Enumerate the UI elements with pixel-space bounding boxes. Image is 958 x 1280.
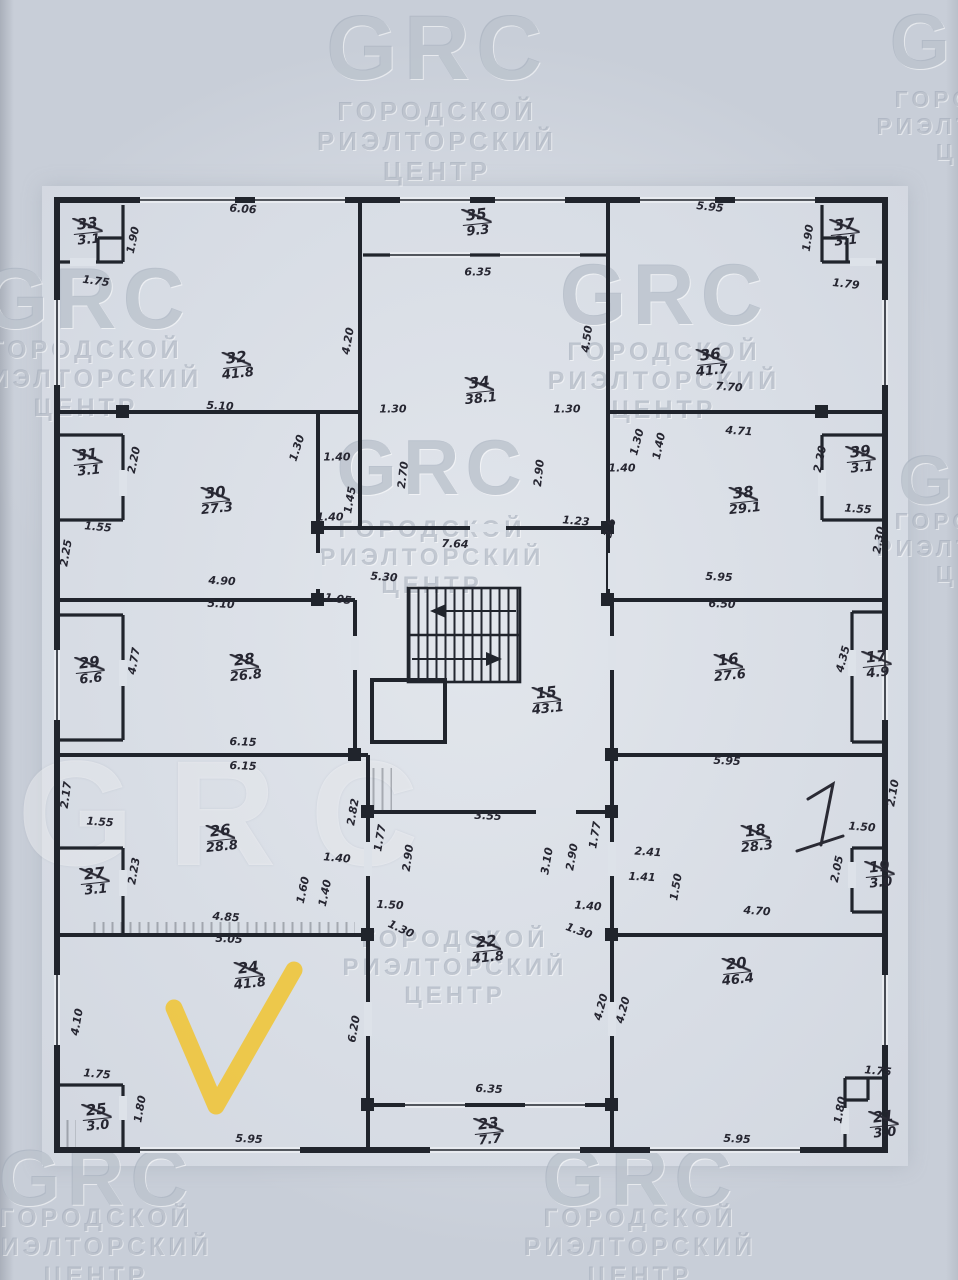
dimension-label: 1.30 [386, 917, 416, 940]
dimension-label: 1.55 [84, 519, 112, 534]
room-number: 23 [473, 1115, 503, 1135]
dimension-label: 4.20 [339, 327, 357, 356]
room-number: 30 [200, 484, 230, 504]
dimension-label: 1.77 [586, 821, 604, 850]
scanned-floor-plan: GRC ГОРОДСКОЙРИЭЛТОРСКИЙЦЕНТР GRC ГОРОДС… [0, 0, 958, 1280]
room-label: 37 3.1 [829, 213, 861, 251]
room-number: 27 [79, 865, 109, 885]
room-area: 3.1 [74, 463, 104, 481]
room-label: 28 26.8 [227, 648, 263, 686]
dimension-label: 5.95 [235, 1132, 263, 1146]
dimension-label: 1.90 [800, 224, 817, 253]
room-label: 35 9.3 [461, 203, 493, 241]
dimension-label: 6.35 [475, 1082, 503, 1096]
dimension-label: 4.20 [613, 995, 633, 1025]
dimension-label: 2.20 [125, 445, 143, 474]
dimension-label: 5.10 [207, 597, 235, 611]
dimension-label: 1.79 [832, 276, 860, 292]
dimension-label: 7.70 [715, 380, 743, 395]
room-area: 3.1 [81, 882, 111, 900]
dimension-label: 4.50 [579, 325, 596, 354]
room-area: 26.8 [229, 668, 262, 686]
dimension-label: 2.17 [58, 781, 75, 810]
dimension-label: 6.20 [345, 1015, 363, 1044]
dimension-label: 5.95 [705, 570, 733, 584]
dimension-label: 1.40 [316, 511, 343, 524]
dimension-label: 2.25 [57, 539, 75, 568]
dimension-label: 2.10 [884, 779, 902, 808]
dimension-label: 1.77 [371, 824, 389, 853]
dimension-label: 1.50 [848, 820, 876, 835]
room-number: 20 [721, 955, 751, 975]
room-label: 39 3.1 [845, 440, 877, 478]
room-label: 23 7.7 [473, 1112, 505, 1150]
dimension-label: 4.90 [208, 574, 236, 588]
room-area: 3.1 [74, 232, 104, 250]
dimension-label: 1.55 [86, 815, 114, 830]
dimension-label: 1.05 [324, 591, 353, 608]
room-area: 3.1 [847, 460, 877, 478]
dimension-label: 6.06 [229, 202, 257, 217]
dimension-label: 1.75 [864, 1063, 892, 1078]
dimension-label: 1.40 [323, 451, 350, 464]
room-number: 26 [205, 822, 235, 842]
dimension-label: 1.30 [287, 433, 308, 463]
dimension-label: 2.23 [125, 857, 143, 886]
room-area: 46.4 [721, 972, 754, 990]
dimension-label: 4.77 [125, 647, 143, 676]
dimension-label: 3.10 [538, 847, 556, 876]
dimension-label: 1.30 [553, 403, 580, 416]
room-label: 18 28.3 [738, 819, 774, 857]
dimension-label: 1.23 [562, 513, 590, 528]
dimension-label: 1.50 [667, 873, 685, 902]
room-number: 32 [221, 349, 251, 369]
room-label: 16 27.6 [711, 648, 747, 686]
dimension-label: 5.05 [215, 932, 243, 946]
dimension-label: 1.45 [341, 486, 359, 515]
room-number: 28 [229, 651, 259, 671]
dimension-label: 5.95 [713, 754, 741, 768]
room-label: 25 3.0 [81, 1098, 113, 1136]
room-area: 9.3 [463, 223, 493, 241]
dimension-label: 4.71 [725, 424, 753, 439]
room-number: 36 [695, 346, 725, 366]
dimension-label: 1.40 [608, 462, 635, 475]
dimension-label: 6.35 [464, 266, 491, 279]
room-area: 27.3 [200, 501, 233, 519]
dimension-label: 1.90 [124, 225, 142, 254]
dimension-label: 2.70 [395, 461, 411, 490]
room-area: 6.6 [76, 671, 106, 689]
dimension-label: 1.55 [844, 502, 872, 517]
dimension-label: 1.30 [627, 427, 647, 457]
room-area: 41.8 [221, 366, 254, 384]
room-number: 33 [72, 215, 102, 235]
room-area: 41.7 [695, 363, 728, 381]
dimension-label: 2.90 [400, 844, 417, 873]
dimension-label: 5.95 [696, 199, 724, 215]
dimension-label: 1.50 [376, 898, 404, 912]
dimension-label: 1.60 [294, 875, 312, 904]
room-label: 38 29.1 [726, 481, 762, 519]
dimension-label: 1.80 [131, 1095, 149, 1124]
room-number: 31 [72, 446, 102, 466]
room-number: 18 [740, 822, 770, 842]
room-number: 21 [868, 1108, 898, 1128]
dimension-label: 4.20 [591, 992, 611, 1022]
room-label: 32 41.8 [219, 346, 255, 384]
dimension-label: 4.35 [833, 644, 853, 674]
room-number: 19 [864, 858, 894, 878]
dimension-label: 5.30 [370, 570, 398, 585]
room-number: 38 [728, 484, 758, 504]
room-number: 22 [471, 933, 501, 953]
room-label: 29 6.6 [74, 651, 106, 689]
dimension-label: 1.40 [316, 878, 334, 907]
room-area: 41.8 [233, 976, 266, 994]
room-area: 3.0 [83, 1118, 113, 1136]
dimension-label: 1.40 [574, 899, 602, 914]
dimension-label: 2.20 [811, 444, 829, 473]
room-area: 29.1 [728, 501, 761, 519]
room-area: 28.8 [205, 839, 238, 857]
dimension-label: 2.41 [634, 845, 662, 860]
dimension-label: 7.64 [441, 537, 469, 551]
dimension-label: 5.95 [723, 1132, 751, 1146]
dimension-label: 1.30 [379, 403, 406, 416]
room-label: 34 38.1 [462, 371, 498, 409]
dimension-label: 6.50 [708, 597, 736, 611]
dimension-label: 2.82 [344, 798, 362, 827]
dimension-label: 2.90 [531, 459, 547, 487]
dimension-label: 2.90 [563, 843, 581, 872]
dimension-label: 3.55 [474, 809, 502, 823]
dimension-label: 6.15 [229, 735, 257, 749]
room-area: 3.0 [866, 875, 896, 893]
room-number: 34 [464, 374, 494, 394]
room-number: 25 [81, 1101, 111, 1121]
room-number: 29 [74, 654, 104, 674]
room-area: 3.0 [870, 1125, 900, 1143]
room-label: 19 3.0 [864, 855, 896, 893]
dimension-label: 1.75 [83, 1066, 111, 1081]
room-label: 24 41.8 [231, 956, 267, 994]
room-area: 4.9 [863, 665, 893, 683]
dimension-label: 1.40 [650, 431, 668, 460]
dimension-label: 1.80 [831, 1096, 849, 1125]
room-label: 31 3.1 [72, 443, 104, 481]
room-label: 26 28.8 [203, 819, 239, 857]
room-area: 3.1 [831, 233, 861, 251]
dimension-label: 1.40 [323, 850, 351, 865]
room-number: 16 [713, 651, 743, 671]
room-area: 27.6 [713, 668, 746, 686]
dimension-label: 4.70 [743, 904, 771, 919]
labels-layer: 33 3.1 32 41.8 35 9.3 34 38.1 36 41.7 37… [0, 0, 958, 1280]
room-number: 17 [861, 648, 891, 668]
dimension-label: 2.30 [870, 526, 888, 555]
room-area: 38.1 [464, 391, 497, 409]
room-label: 36 41.7 [693, 343, 729, 381]
room-label: 22 41.8 [469, 930, 505, 968]
dimension-label: 1.75 [82, 273, 111, 290]
room-label: 17 4.9 [861, 645, 893, 683]
dimension-label: 3.6 [601, 517, 619, 539]
room-area: 28.3 [740, 839, 773, 857]
dimension-label: 5.10 [206, 399, 234, 413]
dimension-label: 4.85 [212, 910, 240, 925]
dimension-label: 4.10 [68, 1008, 86, 1037]
room-area: 41.8 [471, 950, 504, 968]
room-number: 39 [845, 443, 875, 463]
dimension-label: 2.05 [828, 854, 846, 883]
room-area: 43.1 [531, 701, 564, 719]
room-label: 30 27.3 [198, 481, 234, 519]
room-number: 15 [531, 684, 561, 704]
room-label: 21 3.0 [868, 1105, 900, 1143]
room-number: 35 [461, 206, 491, 226]
room-number: 37 [829, 216, 859, 236]
room-number: 24 [233, 959, 263, 979]
room-label: 20 46.4 [719, 952, 755, 990]
room-label: 15 43.1 [529, 681, 565, 719]
room-label: 27 3.1 [79, 862, 111, 900]
dimension-label: 1.41 [628, 870, 656, 884]
room-area: 7.7 [475, 1132, 505, 1150]
dimension-label: 6.15 [229, 759, 257, 773]
room-label: 33 3.1 [72, 212, 104, 250]
dimension-label: 1.30 [564, 920, 594, 941]
